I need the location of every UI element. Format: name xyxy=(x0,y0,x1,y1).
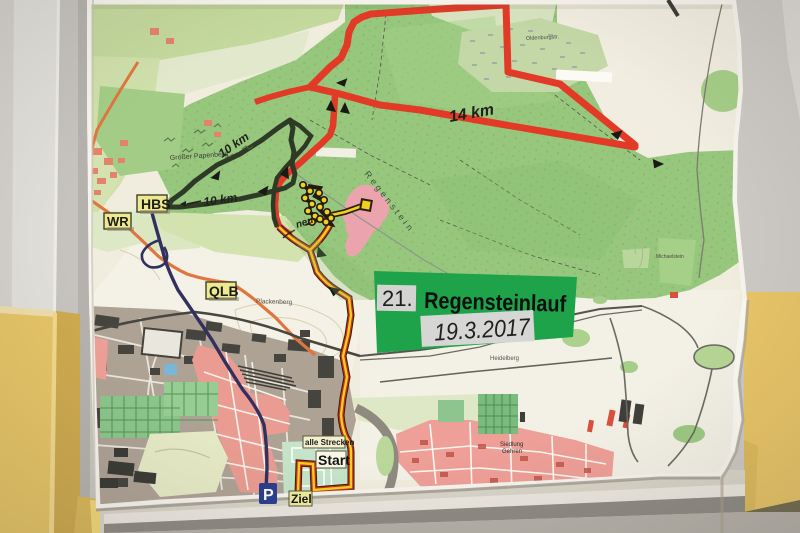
svg-text:21.: 21. xyxy=(382,286,413,311)
